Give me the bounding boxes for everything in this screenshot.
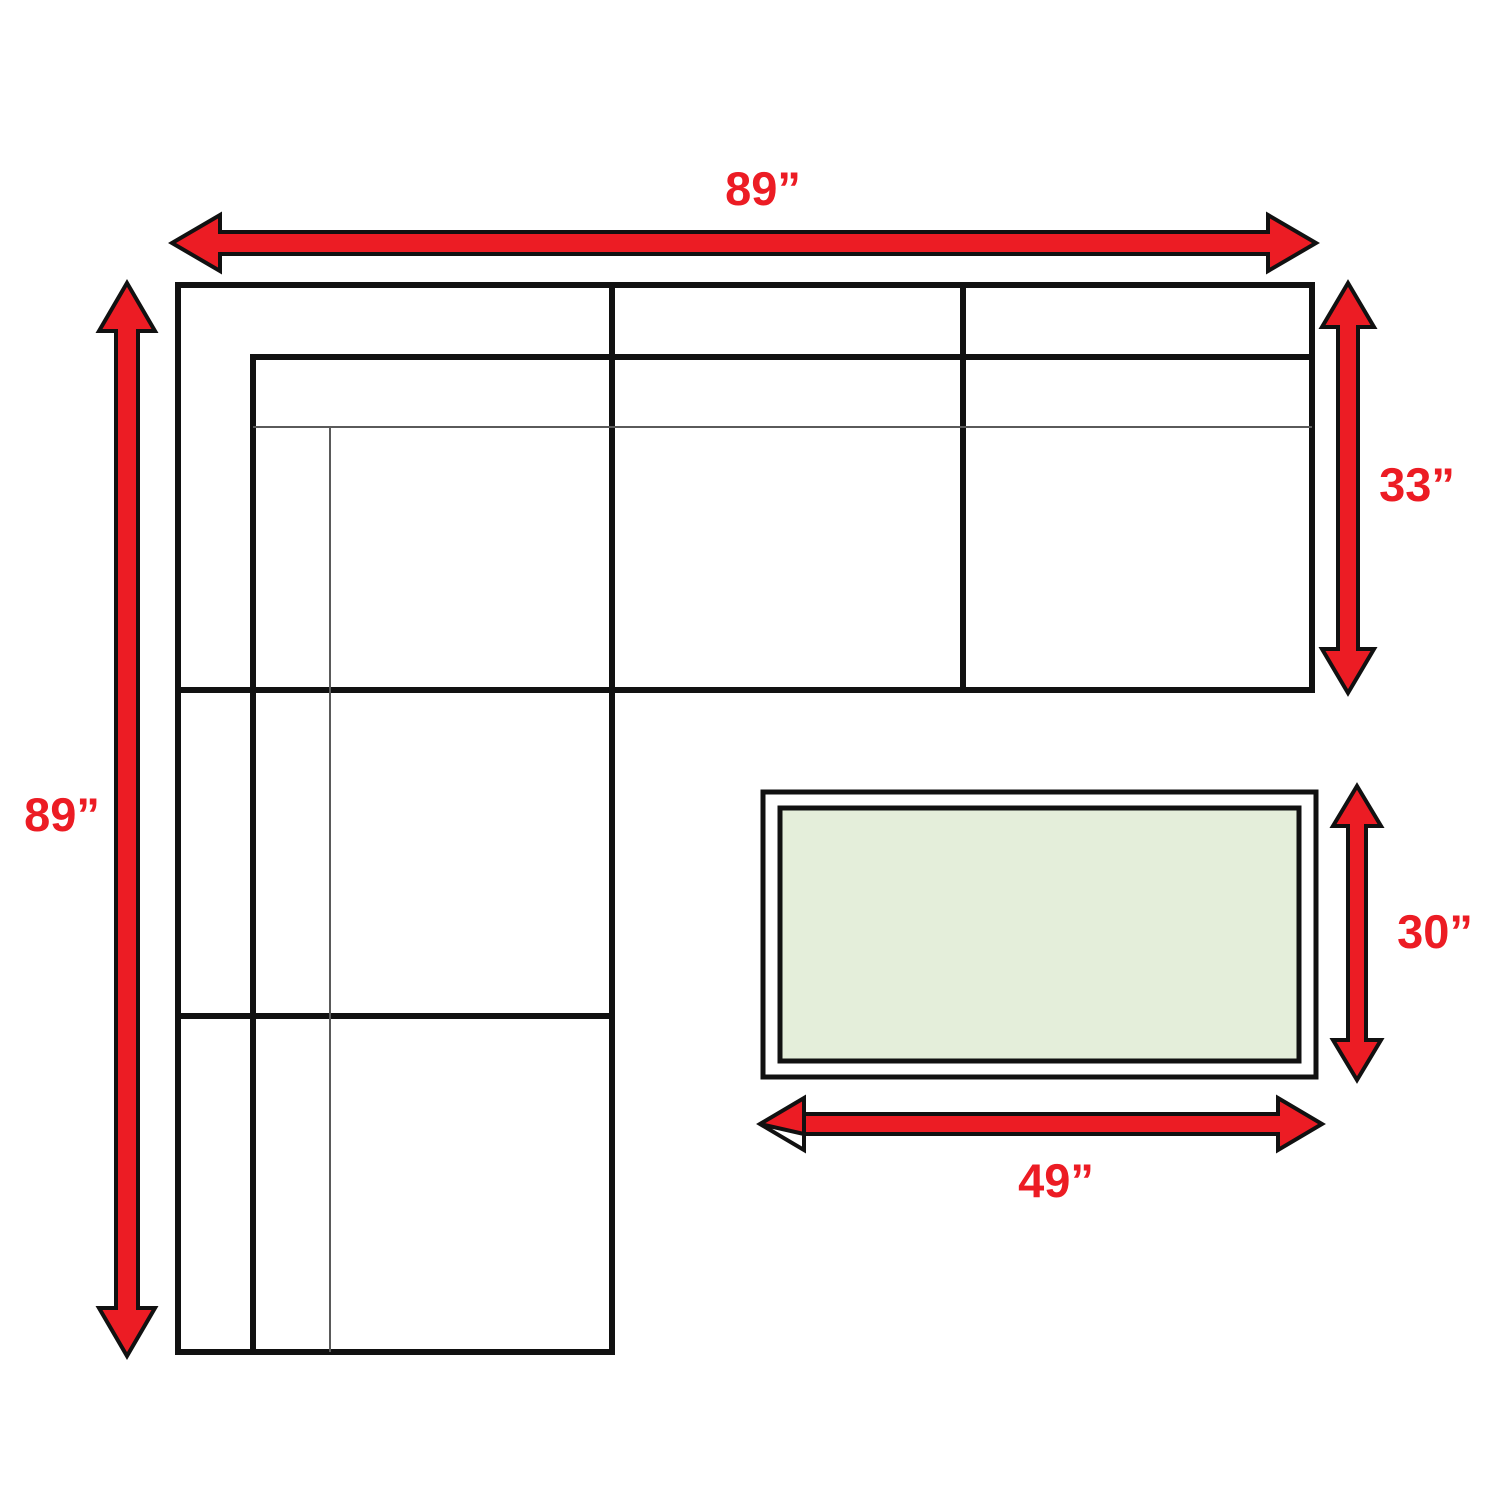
sofa-width-arrow bbox=[172, 215, 1316, 271]
sofa-length-arrow bbox=[99, 283, 155, 1356]
table-depth-arrow bbox=[1333, 786, 1381, 1080]
sofa-depth-label: 33” bbox=[1379, 458, 1455, 511]
sofa-length-label: 89” bbox=[24, 788, 100, 841]
dimension-arrows bbox=[99, 215, 1381, 1356]
table-depth-label: 30” bbox=[1397, 905, 1473, 958]
sofa-width-label: 89” bbox=[725, 162, 801, 215]
sofa-depth-arrow bbox=[1322, 283, 1374, 693]
table-top bbox=[780, 808, 1299, 1061]
table-group bbox=[763, 792, 1316, 1077]
table-width-label: 49” bbox=[1018, 1154, 1094, 1207]
table-width-arrow bbox=[760, 1098, 1322, 1150]
diagram-svg: 89” 89” 33” 30” 49” bbox=[0, 0, 1500, 1500]
sofa-dimension-diagram: 89” 89” 33” 30” 49” bbox=[0, 0, 1500, 1500]
